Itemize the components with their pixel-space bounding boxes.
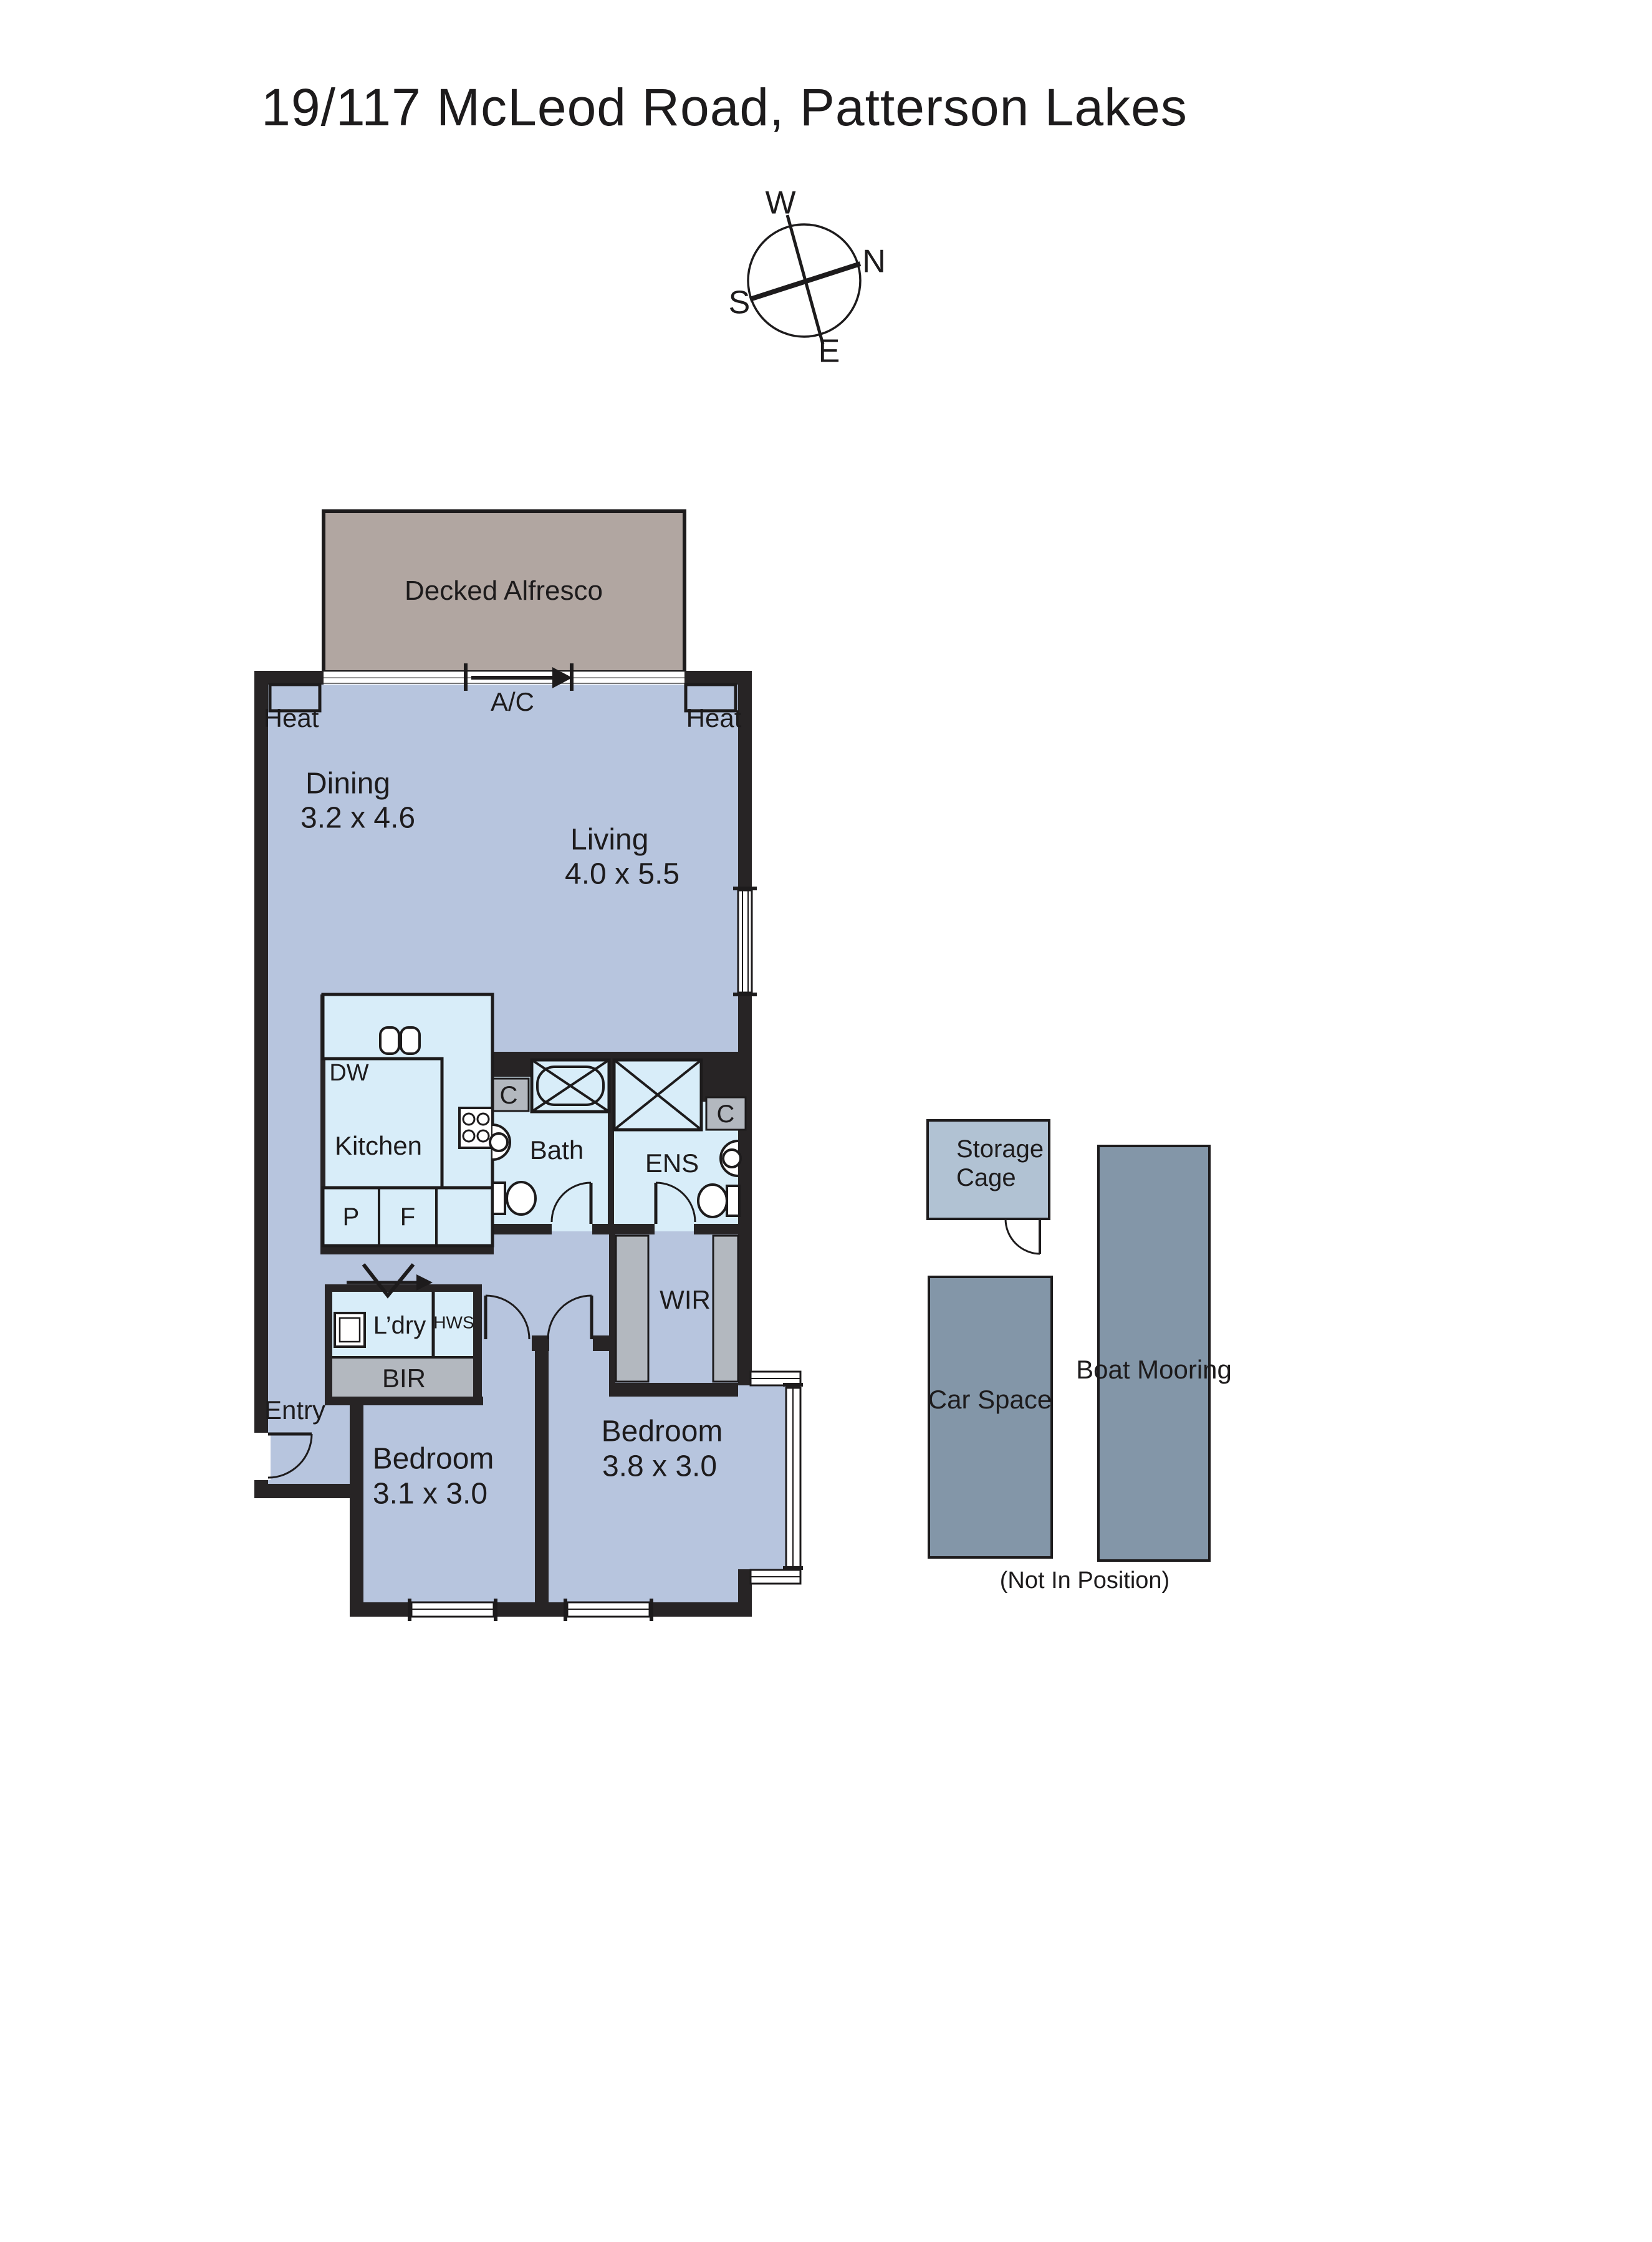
label-storage-line1: Storage bbox=[956, 1135, 1044, 1163]
label-fridge: F bbox=[400, 1203, 415, 1231]
label-living: Living bbox=[570, 824, 648, 857]
label-kitchen: Kitchen bbox=[335, 1132, 422, 1160]
label-boat-mooring: Boat Mooring bbox=[1076, 1355, 1232, 1384]
label-car-space: Car Space bbox=[928, 1385, 1052, 1414]
label-living-dims: 4.0 x 5.5 bbox=[565, 859, 680, 892]
car-space-area bbox=[929, 1277, 1052, 1557]
ens-shower-icon bbox=[614, 1060, 701, 1130]
cooktop-icon bbox=[459, 1108, 492, 1148]
compass-label-s: S bbox=[729, 285, 751, 320]
label-cupboard-bath: C bbox=[500, 1082, 518, 1109]
label-bedroom2: Bedroom bbox=[602, 1416, 723, 1449]
label-pantry: P bbox=[343, 1203, 360, 1231]
label-bedroom1-dims: 3.1 x 3.0 bbox=[373, 1478, 487, 1511]
floorplan-page: { "title": "19/117 McLeod Road, Patterso… bbox=[0, 0, 1652, 2242]
label-laundry: L’dry bbox=[373, 1312, 426, 1339]
label-decked-alfresco: Decked Alfresco bbox=[405, 576, 603, 606]
wir-shelf-left bbox=[616, 1236, 648, 1382]
storage-cage-door-arc bbox=[1006, 1219, 1040, 1254]
laundry-tub-icon bbox=[335, 1313, 365, 1347]
label-hws: HWS bbox=[433, 1314, 474, 1333]
boat-mooring-area bbox=[1098, 1146, 1209, 1561]
label-entry: Entry bbox=[264, 1396, 325, 1425]
ens-toilet-icon bbox=[698, 1185, 739, 1217]
label-wir: WIR bbox=[660, 1286, 711, 1314]
label-heat-right: Heat bbox=[686, 704, 742, 733]
compass-label-n: N bbox=[862, 244, 886, 279]
label-dining: Dining bbox=[305, 768, 390, 801]
label-cupboard-ens: C bbox=[717, 1100, 735, 1128]
label-dw: DW bbox=[329, 1061, 368, 1087]
label-ac: A/C bbox=[491, 688, 534, 716]
label-storage-line2: Cage bbox=[956, 1164, 1016, 1191]
compass-rose-icon bbox=[748, 215, 860, 344]
wir-shelf-right bbox=[713, 1236, 738, 1382]
bathtub-icon bbox=[532, 1060, 609, 1112]
compass-label-w: W bbox=[765, 185, 795, 221]
label-position-note: (Not In Position) bbox=[1000, 1568, 1169, 1594]
label-heat-left: Heat bbox=[264, 704, 319, 733]
compass-label-e: E bbox=[819, 334, 840, 369]
bath-toilet-icon bbox=[492, 1182, 535, 1215]
label-bedroom2-dims: 3.8 x 3.0 bbox=[602, 1451, 717, 1484]
label-bir: BIR bbox=[382, 1364, 426, 1393]
page-title: 19/117 McLeod Road, Patterson Lakes bbox=[261, 79, 1188, 136]
label-ens: ENS bbox=[645, 1149, 699, 1178]
label-bedroom1: Bedroom bbox=[373, 1443, 494, 1476]
label-bath: Bath bbox=[530, 1136, 583, 1165]
label-dining-dims: 3.2 x 4.6 bbox=[300, 802, 415, 835]
